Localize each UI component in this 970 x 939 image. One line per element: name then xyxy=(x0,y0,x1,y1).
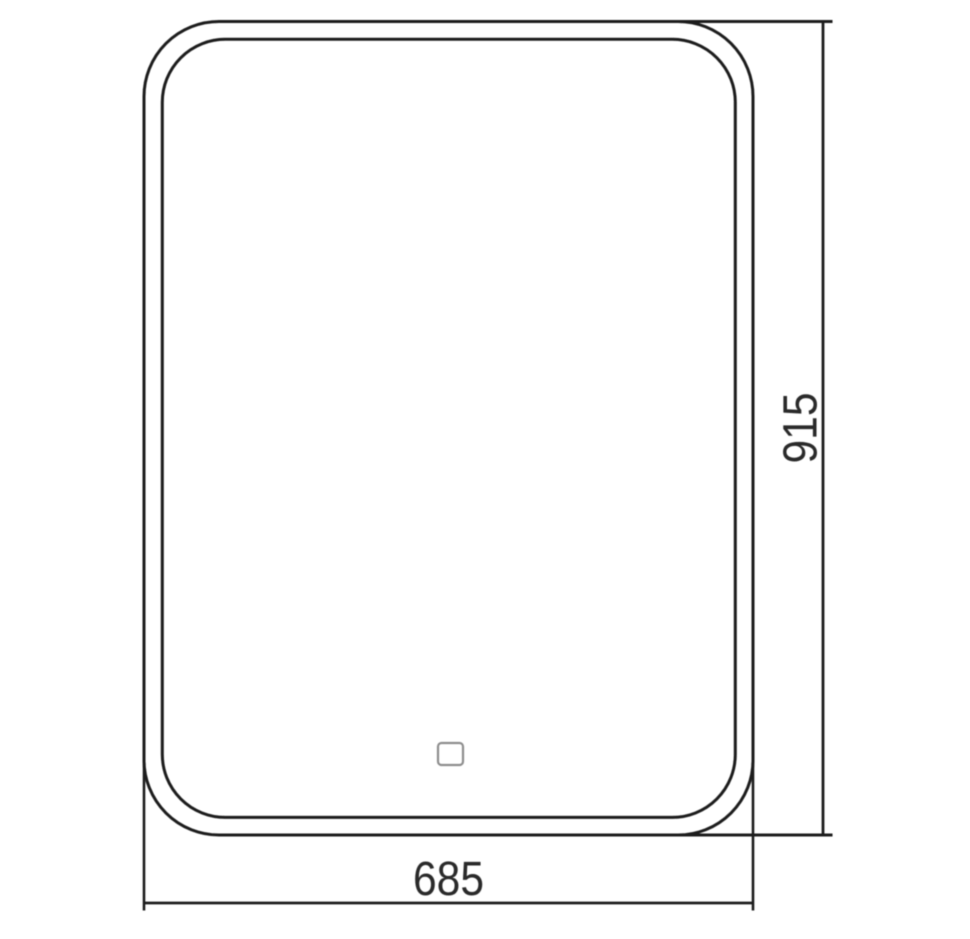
svg-text:915: 915 xyxy=(773,393,827,464)
svg-text:685: 685 xyxy=(413,852,484,906)
